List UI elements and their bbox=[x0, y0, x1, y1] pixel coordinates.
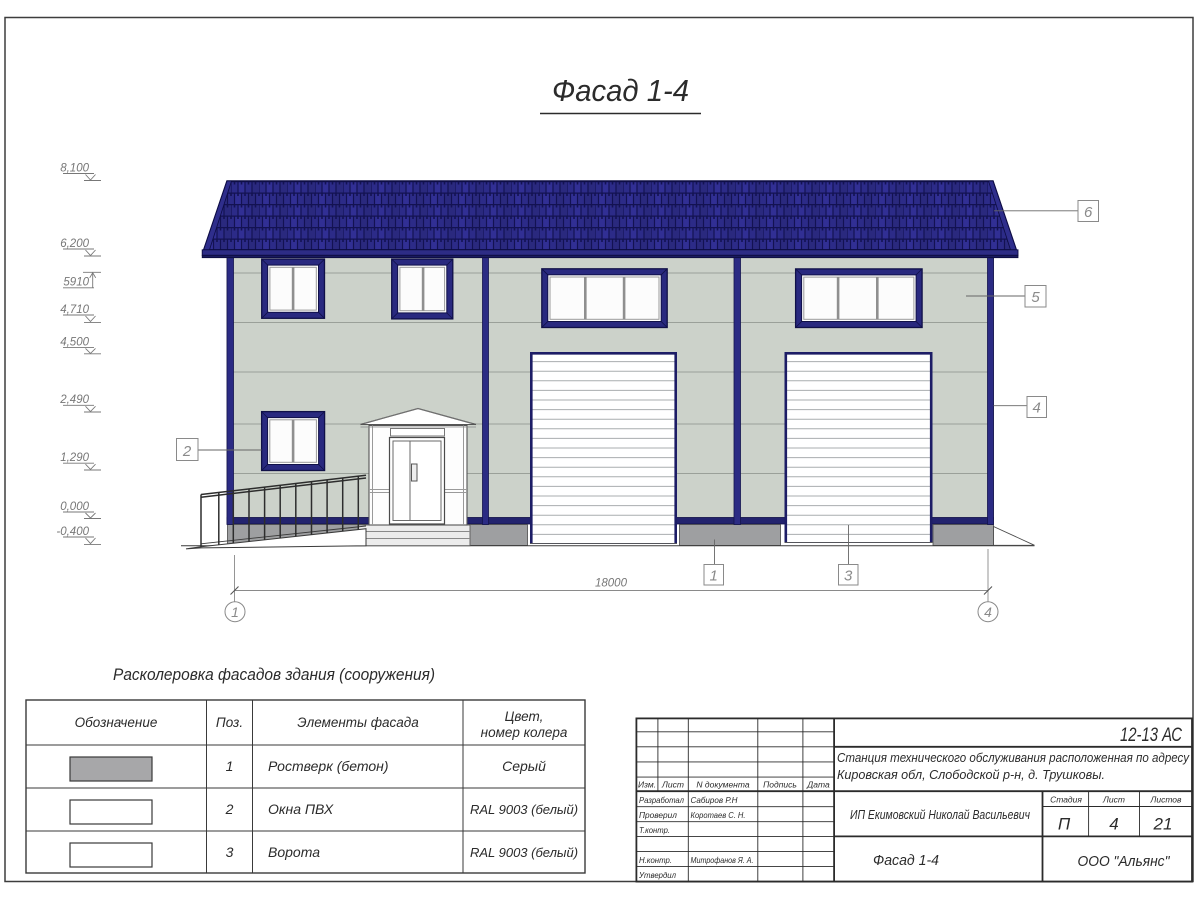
svg-text:Стадия: Стадия bbox=[1050, 795, 1082, 805]
svg-text:Ростверк (бетон): Ростверк (бетон) bbox=[268, 758, 389, 774]
svg-text:Подпись: Подпись bbox=[763, 780, 797, 790]
svg-text:N документа: N документа bbox=[696, 780, 749, 790]
svg-text:21: 21 bbox=[1153, 815, 1173, 834]
svg-text:2: 2 bbox=[225, 801, 234, 817]
svg-text:Митрофанов Я. А.: Митрофанов Я. А. bbox=[691, 855, 754, 865]
svg-text:4,500: 4,500 bbox=[60, 337, 89, 349]
svg-text:Кировская обл, Слободской р-н,: Кировская обл, Слободской р-н, д. Трушко… bbox=[837, 768, 1105, 782]
svg-text:-0,400: -0,400 bbox=[56, 526, 89, 538]
svg-text:Лист: Лист bbox=[1102, 795, 1125, 805]
svg-text:Разработал: Разработал bbox=[639, 795, 684, 805]
svg-text:6: 6 bbox=[1084, 204, 1093, 221]
svg-text:5: 5 bbox=[1031, 289, 1040, 306]
svg-text:Коротаев С. Н.: Коротаев С. Н. bbox=[691, 810, 746, 820]
svg-text:4: 4 bbox=[984, 604, 992, 620]
svg-text:6,200: 6,200 bbox=[60, 238, 89, 250]
svg-text:ООО "Альянс": ООО "Альянс" bbox=[1078, 853, 1171, 870]
svg-text:Элементы фасада: Элементы фасада bbox=[297, 715, 419, 730]
svg-text:0,000: 0,000 bbox=[60, 501, 89, 513]
svg-text:Утвердил: Утвердил bbox=[638, 870, 676, 880]
svg-text:Окна ПВХ: Окна ПВХ bbox=[268, 801, 334, 817]
svg-text:Н.контр.: Н.контр. bbox=[639, 855, 672, 865]
svg-text:RAL 9003 (белый): RAL 9003 (белый) bbox=[470, 845, 578, 860]
svg-text:номер колера: номер колера bbox=[481, 725, 568, 740]
svg-text:Фасад 1-4: Фасад 1-4 bbox=[873, 853, 939, 869]
svg-text:4,710: 4,710 bbox=[60, 304, 89, 316]
svg-text:П: П bbox=[1058, 815, 1071, 834]
svg-text:8,100: 8,100 bbox=[60, 163, 89, 175]
svg-text:Фасад 1-4: Фасад 1-4 bbox=[552, 73, 689, 108]
svg-text:Т.контр.: Т.контр. bbox=[639, 825, 670, 835]
svg-text:3: 3 bbox=[226, 844, 234, 860]
svg-text:1: 1 bbox=[710, 568, 718, 585]
svg-text:1: 1 bbox=[226, 758, 234, 774]
svg-text:4: 4 bbox=[1033, 400, 1041, 417]
svg-text:2: 2 bbox=[182, 443, 192, 460]
svg-text:Цвет,: Цвет, bbox=[505, 709, 544, 724]
svg-text:Изм.: Изм. bbox=[638, 780, 656, 790]
svg-text:4: 4 bbox=[1109, 815, 1118, 834]
svg-text:Лист: Лист bbox=[661, 780, 684, 790]
svg-text:Листов: Листов bbox=[1150, 795, 1183, 805]
svg-text:Проверил: Проверил bbox=[639, 810, 677, 820]
svg-text:1: 1 bbox=[231, 604, 239, 620]
svg-text:Сабиров Р.Н: Сабиров Р.Н bbox=[691, 795, 739, 805]
svg-text:Обозначение: Обозначение bbox=[75, 715, 158, 730]
svg-text:12-13 АС: 12-13 АС bbox=[1120, 725, 1182, 746]
svg-text:Серый: Серый bbox=[502, 758, 546, 774]
svg-text:Поз.: Поз. bbox=[216, 715, 243, 730]
svg-text:Дата: Дата bbox=[806, 780, 830, 790]
svg-text:2,490: 2,490 bbox=[59, 394, 89, 406]
svg-text:ИП Екимовский Николай Васильев: ИП Екимовский Николай Васильевич bbox=[850, 807, 1030, 822]
svg-text:3: 3 bbox=[844, 568, 853, 585]
svg-text:5910: 5910 bbox=[63, 277, 89, 289]
svg-text:Ворота: Ворота bbox=[268, 844, 320, 860]
svg-text:RAL 9003 (белый): RAL 9003 (белый) bbox=[470, 802, 578, 817]
svg-text:Расколеровка фасадов здания (с: Расколеровка фасадов здания (сооружения) bbox=[113, 666, 435, 684]
svg-text:Станция технического обслужива: Станция технического обслуживания распол… bbox=[837, 751, 1190, 765]
svg-text:1,290: 1,290 bbox=[60, 452, 89, 464]
svg-text:18000: 18000 bbox=[595, 578, 628, 590]
